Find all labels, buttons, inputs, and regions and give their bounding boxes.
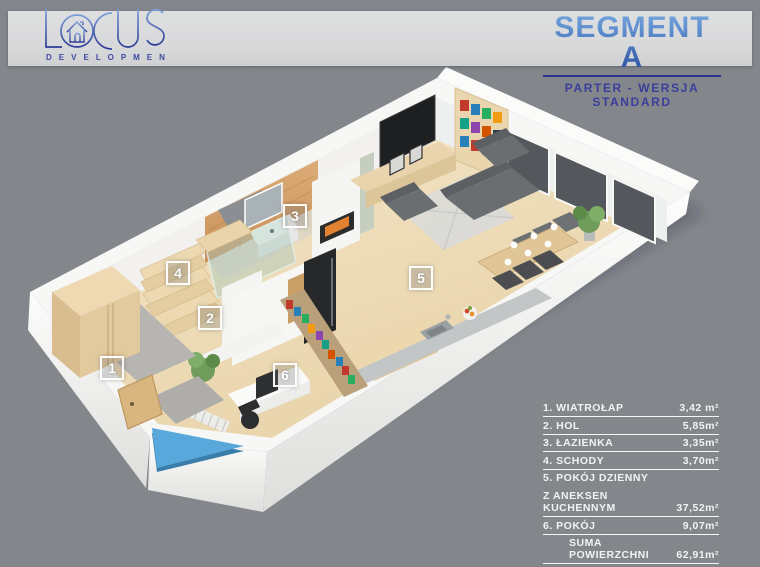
legend-row-schody: 4. SCHODY 3,70m² — [543, 455, 719, 470]
area-legend: 1. WIATROŁAP 3,42 m² 2. HOL 5,85m² 3. ŁA… — [543, 402, 719, 567]
legend-row-hol: 2. HOL 5,85m² — [543, 420, 719, 435]
logo-subtitle: D E V E L O P M E N T — [46, 53, 168, 62]
legend-row-wiatrolap: 1. WIATROŁAP 3,42 m² — [543, 402, 719, 417]
page-title: SEGMENT A — [543, 13, 721, 73]
page-subtitle: PARTER - WERSJA STANDARD — [543, 81, 721, 109]
office-chair — [241, 411, 259, 429]
room-tag-1: 1 — [100, 356, 124, 380]
room-tag-4: 4 — [166, 261, 190, 285]
house-icon — [67, 22, 87, 42]
door-handle — [130, 402, 134, 406]
locus-logo: D E V E L O P M E N T — [32, 1, 168, 70]
title-underline — [543, 75, 721, 77]
room-tag-2: 2 — [198, 306, 222, 330]
logo-letters-icon — [46, 9, 164, 49]
brochure-page: { "page":{"background":"#83878c","band_c… — [0, 0, 760, 536]
legend-row-lazienka: 3. ŁAZIENKA 3,35m² — [543, 437, 719, 452]
title-block: SEGMENT A PARTER - WERSJA STANDARD — [543, 13, 721, 109]
room-tag-6: 6 — [273, 363, 297, 387]
legend-row-pokoj-dzienny: 5. POKÓJ DZIENNY — [543, 472, 719, 487]
room-tag-5: 5 — [409, 266, 433, 290]
legend-row-pokoj: 6. POKÓJ 9,07m² — [543, 520, 719, 535]
kitchen-faucet — [446, 315, 451, 320]
room-tag-3: 3 — [283, 204, 307, 228]
legend-row-aneks-kuchenny: Z ANEKSEN KUCHENNYM 37,52m² — [543, 490, 719, 517]
legend-row-suma: SUMA POWIERZCHNI 62,91m² — [543, 537, 719, 564]
